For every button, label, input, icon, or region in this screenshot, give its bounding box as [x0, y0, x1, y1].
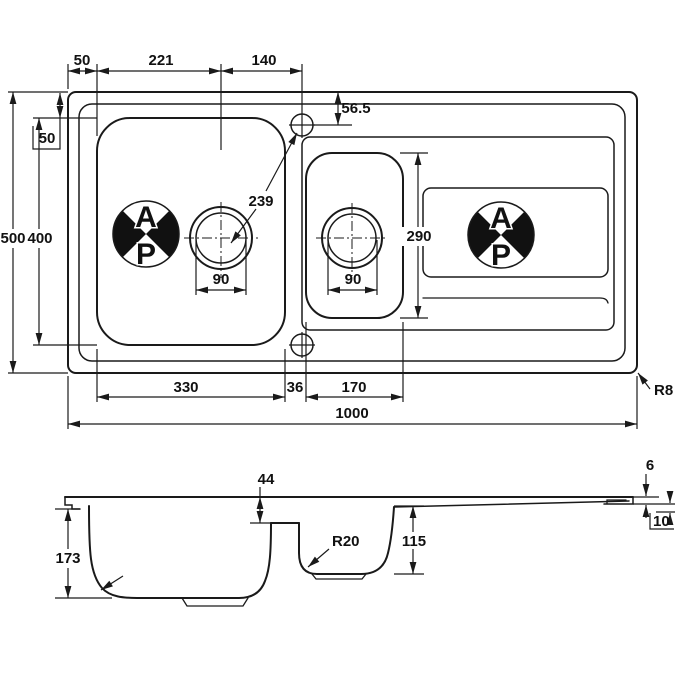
- dim-overall-length-label: 1000: [335, 405, 368, 422]
- dim-end-height-label: 10: [653, 513, 670, 530]
- dim-bowl-length-label: 400: [27, 230, 52, 247]
- dim-overall-depth-label: 500: [0, 230, 25, 247]
- logo-letter-p: P: [491, 239, 511, 272]
- dim-left-overhang-label: 50: [74, 52, 91, 69]
- dim-rim-height-label: 6: [646, 457, 654, 474]
- dim-bowl-gap-label: 36: [287, 379, 304, 396]
- dim-tap-offset-label: 56.5: [341, 100, 370, 117]
- dim-half-bowl-radius-label: R20: [332, 533, 360, 550]
- dim-half-drain-label: 90: [345, 271, 362, 288]
- logo-letter-a: A: [490, 202, 512, 235]
- dim-bowl-edge-to-drain-label: 221: [148, 52, 173, 69]
- dim-top-overhang-label: 50: [39, 130, 56, 147]
- dim-tap-to-drain-label: 239: [248, 193, 273, 210]
- sink-technical-drawing: A P A P 50 221 140 56.5: [0, 0, 675, 675]
- dim-corner-radius-label: R8: [654, 382, 673, 399]
- logo-letter-p: P: [136, 238, 156, 271]
- drawing-canvas: A P A P 50 221 140 56.5: [0, 0, 675, 675]
- dim-half-bowl-width-label: 170: [341, 379, 366, 396]
- logo-letter-a: A: [135, 201, 157, 234]
- dim-drain-to-tap-label: 140: [251, 52, 276, 69]
- dim-half-bowl-depth-label: 115: [402, 533, 426, 550]
- dim-ledge-depth-label: 44: [258, 471, 275, 488]
- dim-bowl-depth-label: 173: [55, 550, 80, 567]
- dim-half-bowl-length-label: 290: [406, 228, 431, 245]
- dim-main-bowl-width-label: 330: [173, 379, 198, 396]
- dim-main-drain-label: 90: [213, 271, 230, 288]
